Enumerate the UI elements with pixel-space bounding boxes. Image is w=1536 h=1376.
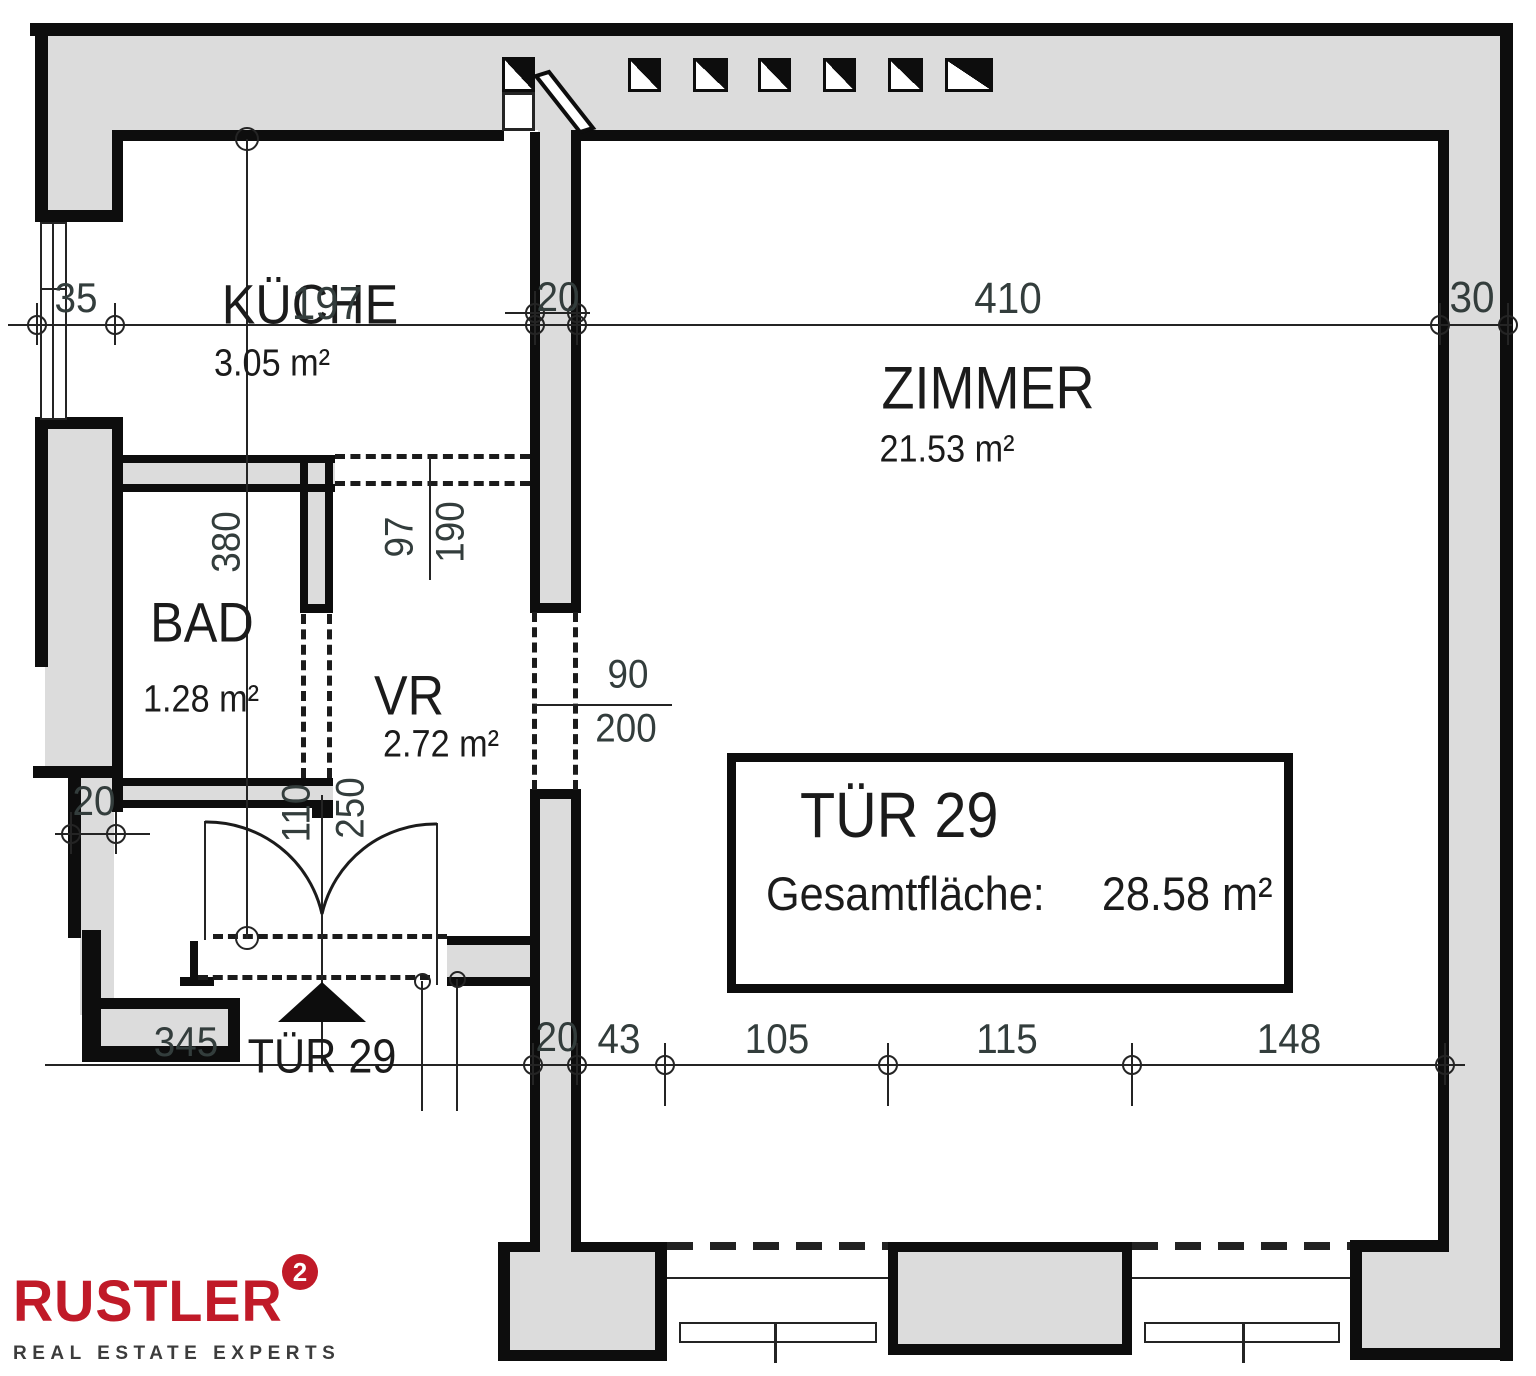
room-area-kueche: 3.05 m² [214,343,330,386]
room-label-bad: BAD [150,590,254,655]
door-leaf [536,72,593,132]
dim-20-top: 20 [537,273,580,321]
entrance-triangle-icon [278,982,366,1022]
dim-380: 380 [205,511,250,572]
room-label-vr: VR [374,663,444,728]
dim-115: 115 [976,1015,1038,1063]
dim-20-bottom: 20 [536,1013,579,1061]
entrance-label: TÜR 29 [248,1030,397,1085]
info-box-area-label: Gesamtfläche: [766,866,1045,921]
floor-plan: KÜCHE 3.05 m² ZIMMER 21.53 m² BAD 1.28 m… [0,0,1536,1376]
room-area-bad: 1.28 m² [143,679,259,722]
logo-tagline: REAL ESTATE EXPERTS [13,1343,340,1365]
dim-35: 35 [55,274,98,322]
dim-90: 90 [608,653,649,698]
logo-brand-text: RUSTLER [13,1268,327,1335]
dim-105: 105 [745,1015,809,1063]
dim-190: 190 [429,501,474,562]
dim-250: 250 [329,777,374,838]
rustler-logo: RUSTLER 2 REAL ESTATE EXPERTS [13,1268,340,1365]
room-area-zimmer: 21.53 m² [880,429,1015,472]
info-box-title: TÜR 29 [800,778,1236,852]
info-box: TÜR 29 Gesamtfläche: 28.58 m² [727,753,1293,993]
logo-superscript-icon: 2 [282,1254,318,1290]
info-box-area-value: 28.58 m² [1102,866,1273,921]
room-area-vr: 2.72 m² [383,724,499,767]
dim-43: 43 [598,1015,641,1063]
dim-97: 97 [378,517,423,558]
dim-20-left: 20 [73,777,116,825]
dim-110: 110 [275,784,320,843]
room-label-zimmer: ZIMMER [882,354,1095,423]
dim-197: 197 [292,276,363,330]
dim-200: 200 [595,707,656,752]
dim-345: 345 [154,1018,218,1066]
dim-410: 410 [974,274,1042,324]
dim-148: 148 [1257,1015,1321,1063]
dim-30: 30 [1449,273,1494,323]
